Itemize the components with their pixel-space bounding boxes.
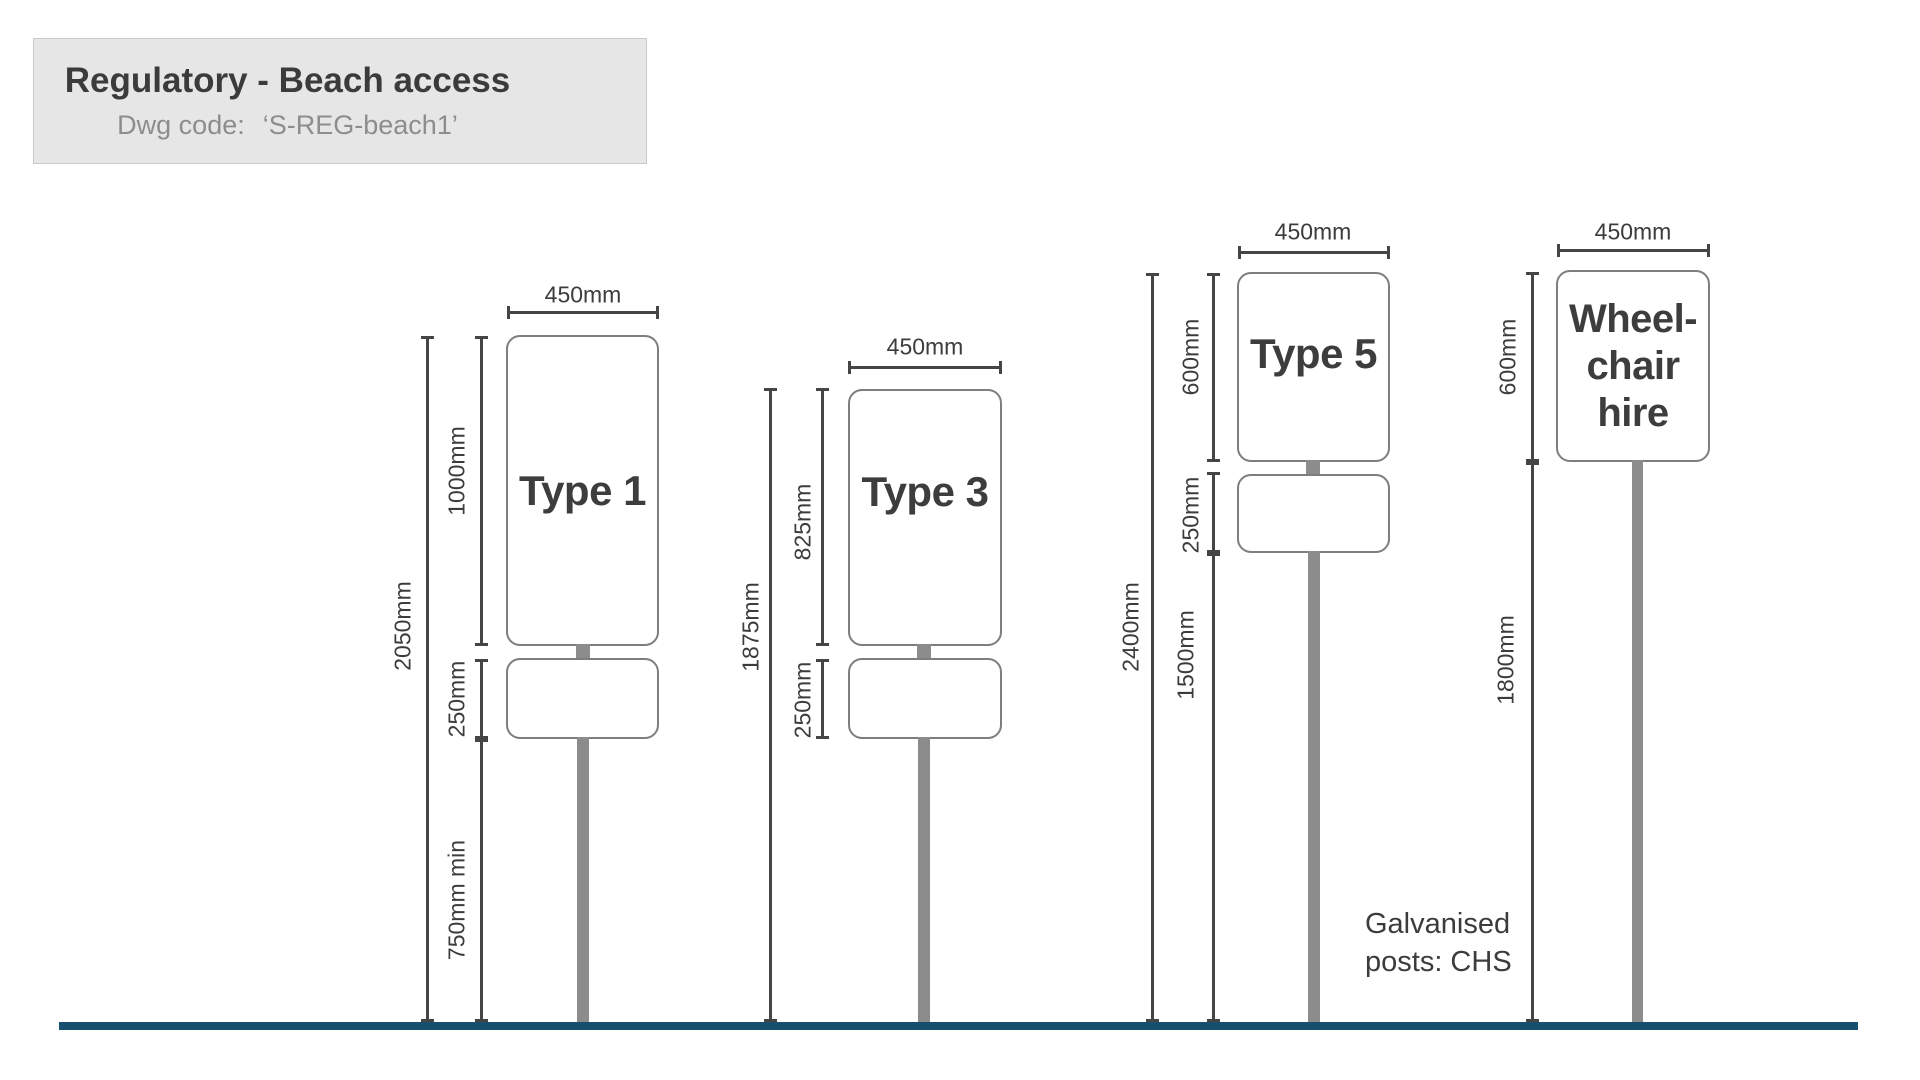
dim-line-type1-panel [480, 336, 483, 646]
dim-line-type5-panel [1212, 273, 1215, 462]
dim-label-type5-total: 2400mm [1118, 582, 1145, 671]
dim-line-type1-secondary [480, 659, 483, 739]
drawing-title: Regulatory - Beach access [65, 61, 510, 101]
sign-panel-type1: Type 1 [506, 335, 659, 646]
dim-label-type3-width: 450mm [887, 334, 964, 361]
dim-label-type5-secondary: 250mm [1178, 477, 1205, 554]
dim-label-wheelchair-panel: 600mm [1495, 319, 1522, 396]
dim-label-type1-total: 2050mm [390, 581, 417, 670]
dim-line-wheelchair-width [1557, 249, 1710, 252]
dim-line-type1-width [507, 311, 659, 314]
ground-line [59, 1022, 1858, 1030]
dim-line-type5-total [1151, 273, 1154, 1022]
title-block: Regulatory - Beach access Dwg code:‘S-RE… [33, 38, 647, 164]
sign-label-wheelchair: Wheel- chair hire [1569, 296, 1697, 437]
dim-label-wheelchair-mount: 1800mm [1493, 615, 1520, 704]
note-line2: posts: CHS [1365, 943, 1512, 981]
dim-label-type5-width: 450mm [1275, 219, 1352, 246]
post-type5 [1308, 551, 1320, 1022]
dim-line-type5-mount [1212, 553, 1215, 1022]
drawing-canvas: Regulatory - Beach access Dwg code:‘S-RE… [0, 0, 1920, 1080]
post-type1 [577, 737, 589, 1022]
secondary-panel-type1 [506, 658, 659, 739]
secondary-panel-type3 [848, 658, 1002, 739]
sign-panel-wheelchair: Wheel- chair hire [1556, 270, 1710, 462]
dim-label-type5-mount: 1500mm [1173, 610, 1200, 699]
post-type3 [918, 737, 930, 1022]
note-galvanised-posts: Galvanised posts: CHS [1365, 905, 1512, 981]
dim-line-type3-total [769, 388, 772, 1022]
dwg-code-value: ‘S-REG-beach1’ [263, 110, 458, 140]
sign-panel-type5: Type 5 [1237, 272, 1390, 462]
sign-label-type1: Type 1 [519, 467, 646, 515]
dim-label-type3-secondary: 250mm [790, 662, 817, 739]
dim-line-wheelchair-panel [1531, 272, 1534, 462]
dim-label-wheelchair-width: 450mm [1595, 219, 1672, 246]
sign-label-type3: Type 3 [862, 468, 989, 516]
sign-label-wheelchair-line2: chair [1569, 343, 1697, 390]
dwg-code-label: Dwg code: [117, 110, 245, 140]
dim-label-type1-panel: 1000mm [444, 426, 471, 515]
dim-line-type1-mount [480, 739, 483, 1022]
sign-label-type5: Type 5 [1250, 330, 1377, 378]
dim-label-type3-panel: 825mm [790, 484, 817, 561]
dim-label-type1-width: 450mm [545, 282, 622, 309]
dim-line-wheelchair-mount [1531, 462, 1534, 1022]
dim-line-type3-panel [821, 388, 824, 646]
sign-panel-type3: Type 3 [848, 389, 1002, 646]
dim-label-type1-mount: 750mm min [444, 840, 471, 960]
dim-label-type1-secondary: 250mm [444, 661, 471, 738]
dim-label-type5-panel: 600mm [1178, 319, 1205, 396]
dim-line-type3-secondary [821, 659, 824, 739]
dim-line-type5-width [1238, 251, 1390, 254]
dwg-code-line: Dwg code:‘S-REG-beach1’ [117, 110, 458, 141]
secondary-panel-type5 [1237, 474, 1390, 553]
sign-label-wheelchair-line1: Wheel- [1569, 296, 1697, 343]
dim-line-type1-total [426, 336, 429, 1022]
dim-line-type3-width [848, 366, 1002, 369]
sign-label-wheelchair-line3: hire [1569, 390, 1697, 437]
dim-label-type3-total: 1875mm [738, 582, 765, 671]
post-wheelchair [1632, 460, 1643, 1022]
dim-line-type5-secondary [1212, 472, 1215, 553]
note-line1: Galvanised [1365, 905, 1512, 943]
